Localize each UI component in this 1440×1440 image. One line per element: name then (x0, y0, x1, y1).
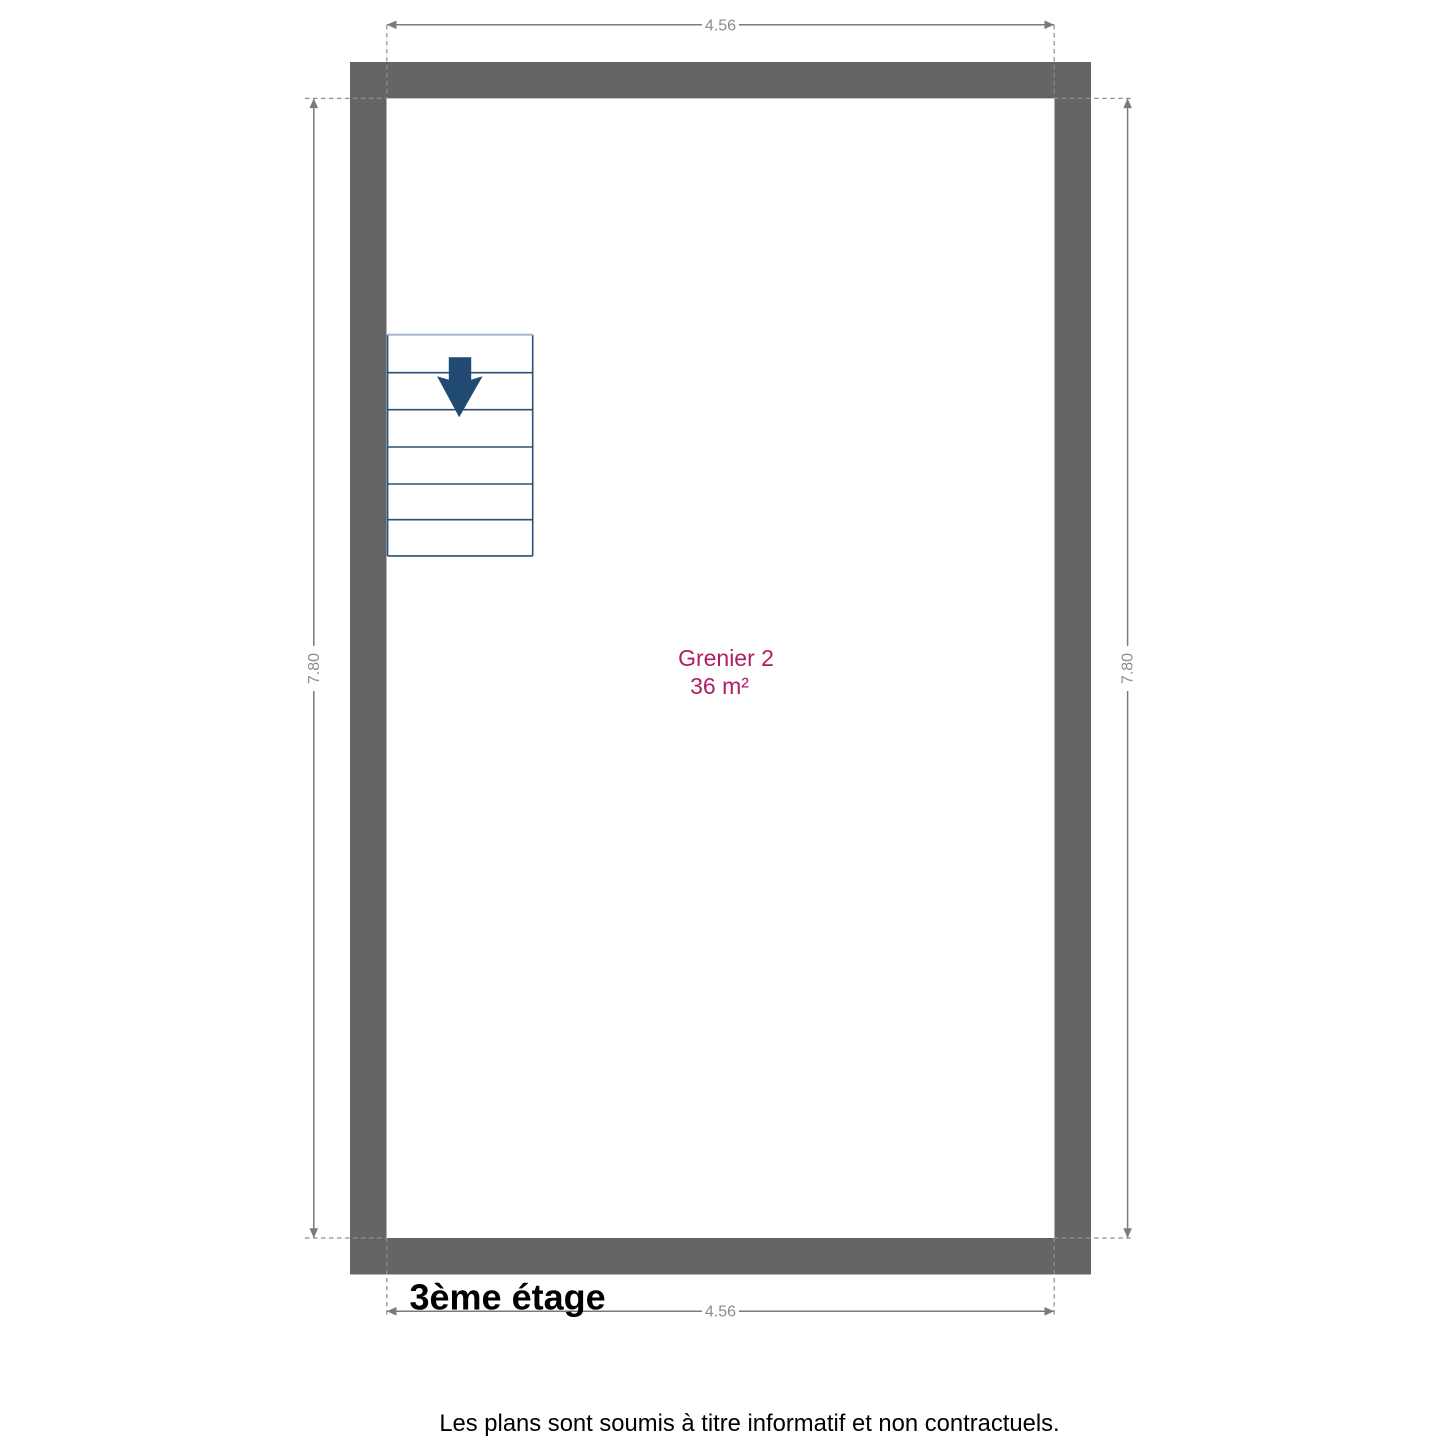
svg-text:Les plans sont soumis à titre: Les plans sont soumis à titre informatif… (439, 1410, 1059, 1437)
svg-text:4.56: 4.56 (705, 1304, 736, 1321)
svg-text:3ème étage: 3ème étage (410, 1276, 606, 1317)
svg-text:4.56: 4.56 (705, 17, 736, 34)
svg-text:7.80: 7.80 (306, 653, 323, 684)
svg-text:7.80: 7.80 (1120, 653, 1137, 684)
svg-text:Grenier 2: Grenier 2 (678, 645, 774, 671)
svg-text:36 m²: 36 m² (690, 673, 749, 699)
